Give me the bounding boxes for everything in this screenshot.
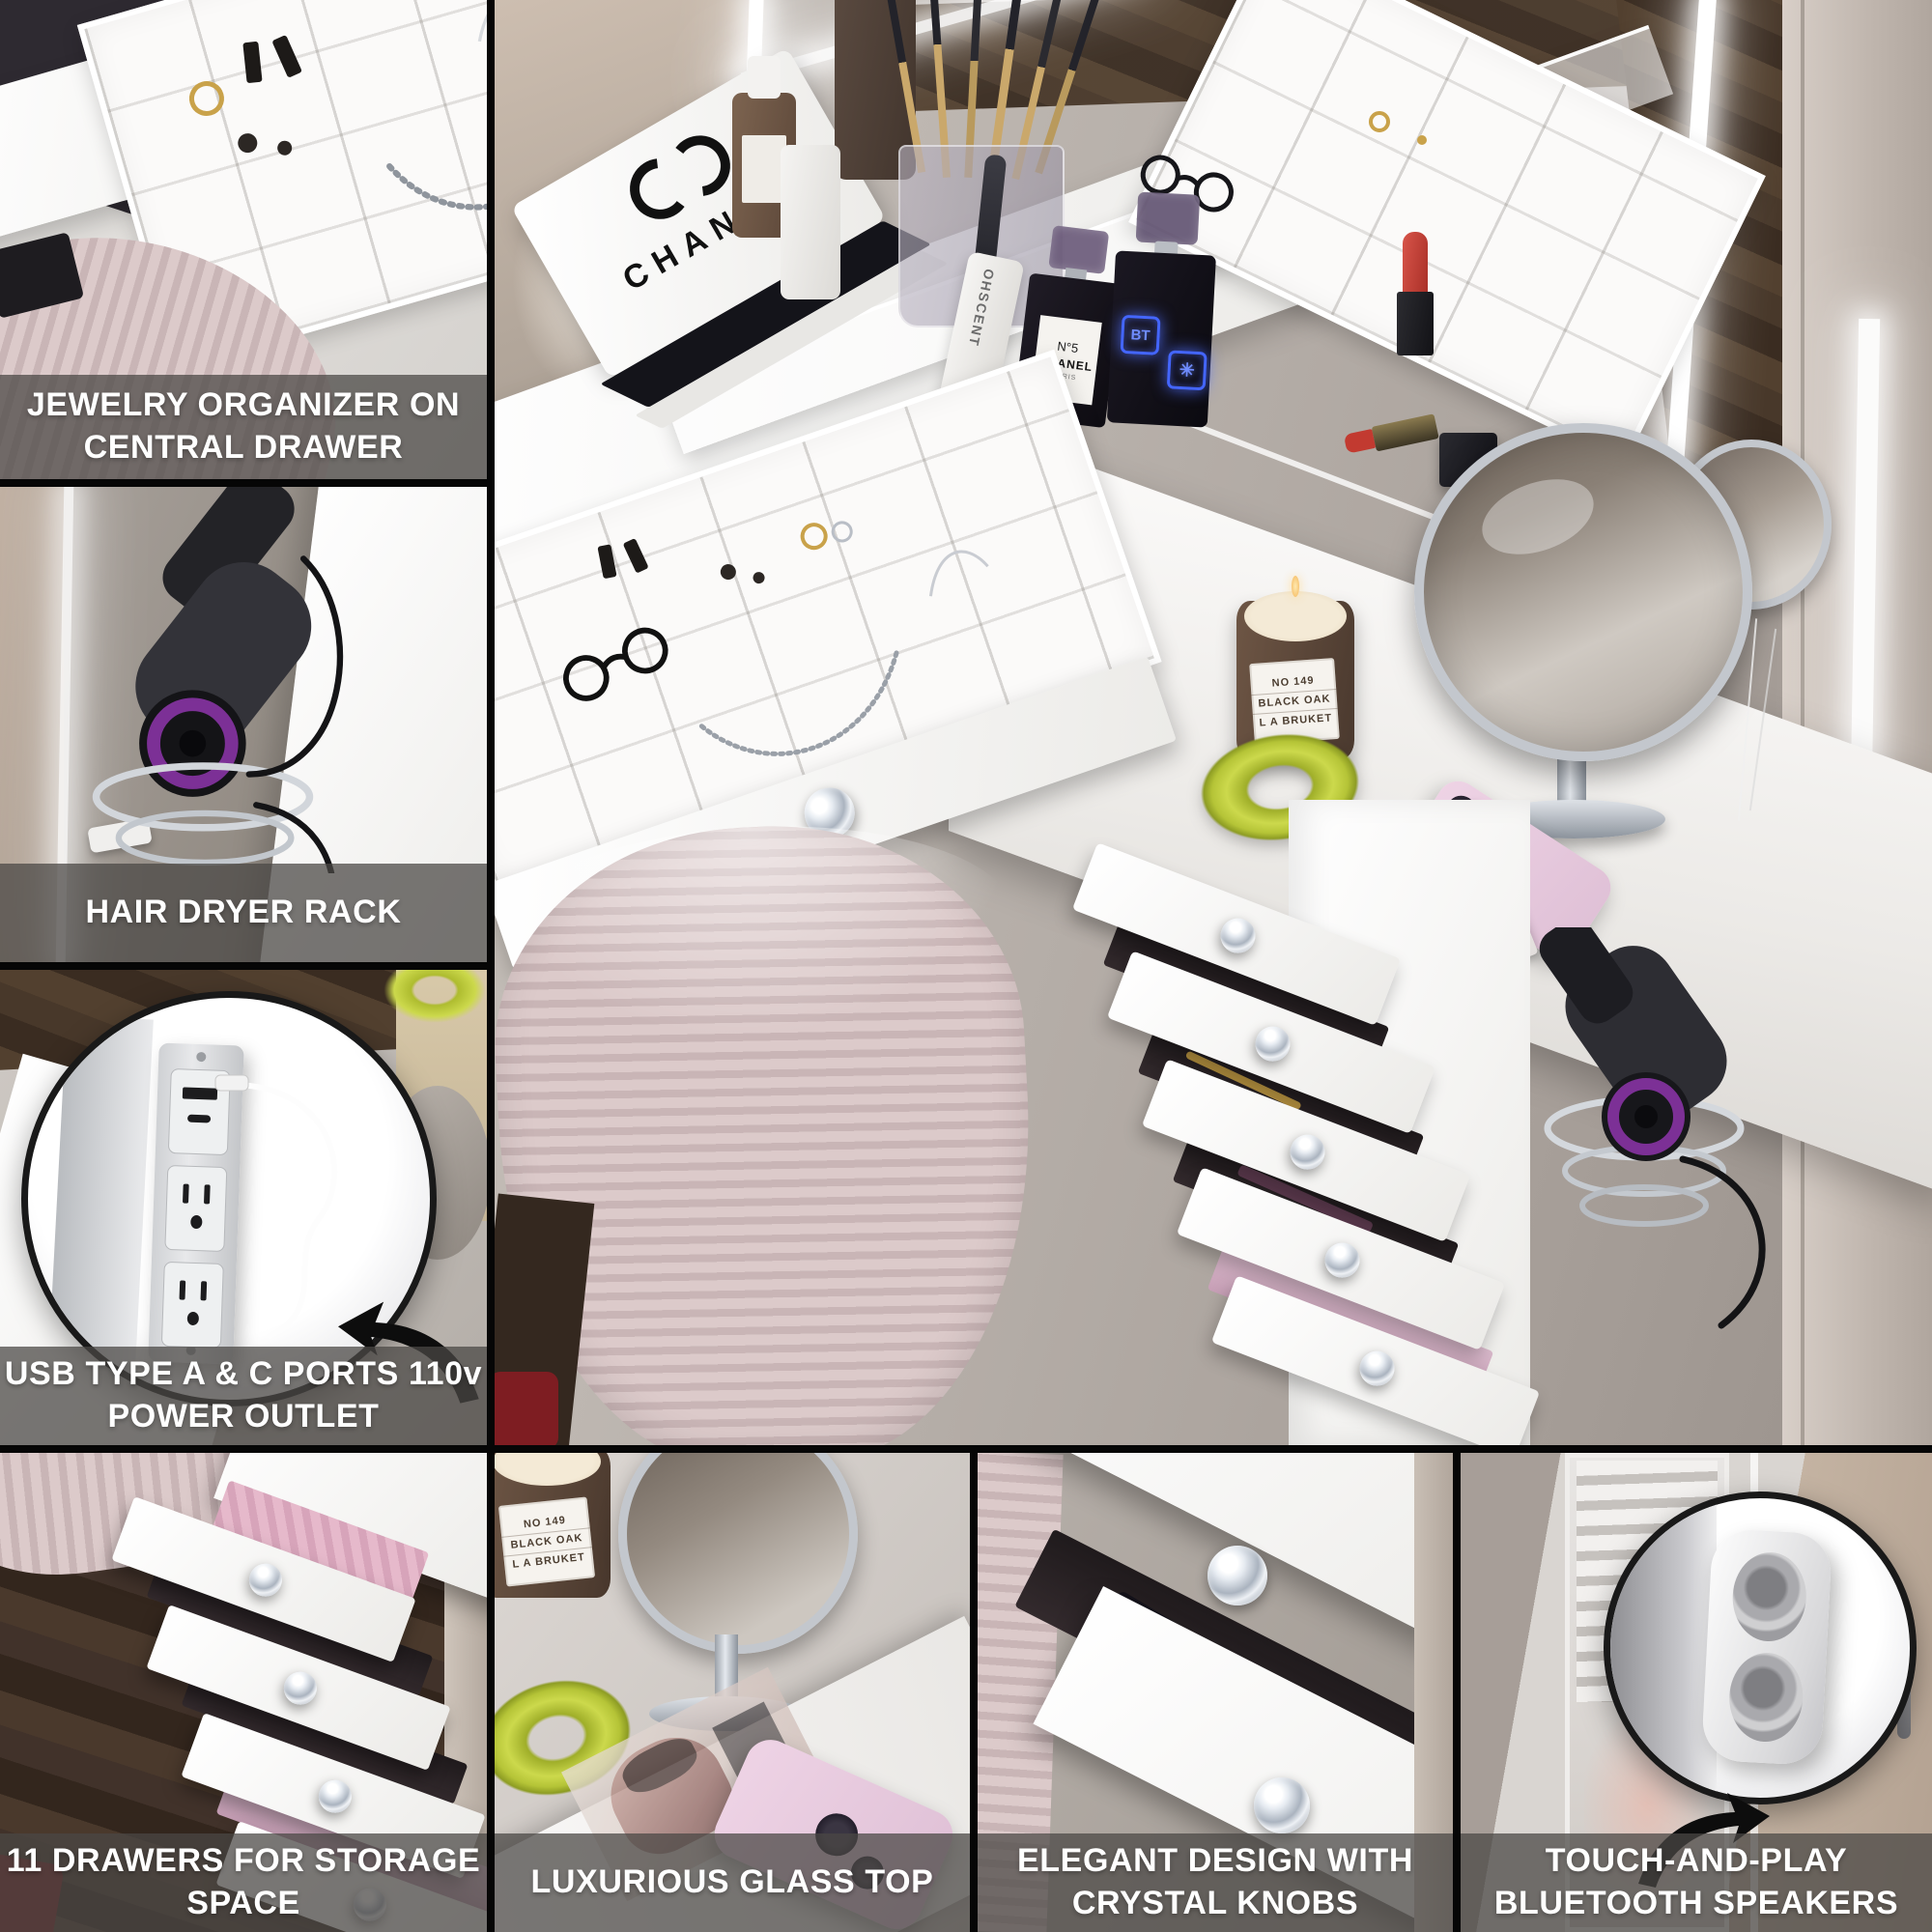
outlet-slot xyxy=(183,1184,189,1204)
outlet-ground xyxy=(187,1312,199,1325)
caption-crystal-knobs: ELEGANT DESIGN WITH CRYSTAL KNOBS xyxy=(978,1833,1453,1932)
drawer-knob[interactable] xyxy=(1215,913,1261,958)
caption-line: USB TYPE A & C PORTS 110v xyxy=(5,1353,482,1396)
mirror-sliver xyxy=(1610,1498,1717,1798)
outlet-ground xyxy=(190,1215,202,1229)
crystal-knob-lower[interactable] xyxy=(1254,1777,1310,1833)
stud-earring xyxy=(236,131,260,156)
perfume-bottle-touch: BT ✳ xyxy=(1107,190,1219,427)
candle-label-name: BLACK OAK xyxy=(1251,689,1337,710)
tassel-earring xyxy=(242,42,262,83)
drawer-knob[interactable] xyxy=(1285,1129,1330,1175)
speaker-magnifier-circle xyxy=(1604,1492,1917,1804)
main-photo-panel: CHANEL OHSCENT xyxy=(495,0,1932,1445)
glass-top-panel: NO 149 BLACK OAK L A BRUKET xyxy=(495,1453,970,1932)
speaker-driver[interactable] xyxy=(1730,1550,1808,1643)
caption-line: CENTRAL DRAWER xyxy=(84,427,404,469)
speaker-driver[interactable] xyxy=(1727,1651,1805,1744)
usb-power-panel: USB TYPE A & C PORTS 110v POWER OUTLET xyxy=(0,970,487,1445)
caption-line: ELEGANT DESIGN WITH xyxy=(1017,1840,1413,1883)
red-bag xyxy=(495,1372,558,1445)
candle-label: NO 149 BLACK OAK L A BRUKET xyxy=(498,1496,595,1586)
caption-line: 11 DRAWERS FOR STORAGE xyxy=(7,1840,481,1883)
gold-hoop-earring xyxy=(185,77,229,121)
bluetooth-touch-icon[interactable]: BT xyxy=(1121,315,1161,355)
wardrobe-seam xyxy=(1801,0,1804,1445)
main-photo-scene: CHANEL OHSCENT xyxy=(495,0,1932,1445)
hair-dryer-in-rack xyxy=(39,487,367,873)
light-touch-glyph: ✳ xyxy=(1179,358,1195,382)
jewelry-organizer-panel: JEWELRY ORGANIZER ON CENTRAL DRAWER xyxy=(0,0,487,479)
light-touch-icon[interactable]: ✳ xyxy=(1167,350,1207,390)
drawer-knob[interactable] xyxy=(1320,1237,1365,1283)
drawer-knob[interactable] xyxy=(1354,1346,1400,1391)
caption-jewelry-organizer: JEWELRY ORGANIZER ON CENTRAL DRAWER xyxy=(0,375,487,479)
vanity-mirror xyxy=(618,1453,858,1654)
caption-line: SPACE xyxy=(186,1883,300,1925)
drawers-panel: 11 DRAWERS FOR STORAGE SPACE xyxy=(0,1453,487,1932)
caption-glass-top: LUXURIOUS GLASS TOP xyxy=(495,1833,970,1932)
stud-earring xyxy=(275,139,294,157)
caption-line: JEWELRY ORGANIZER ON xyxy=(27,384,460,427)
vanity-mirror-large xyxy=(1414,423,1752,761)
crystal-knob-large[interactable] xyxy=(1207,1546,1267,1605)
caption-line: LUXURIOUS GLASS TOP xyxy=(531,1861,934,1904)
usb-c-port[interactable] xyxy=(187,1115,211,1123)
tube-label: OHSCENT xyxy=(966,268,998,349)
drawer-knob[interactable] xyxy=(244,1559,287,1602)
inner-shadow-panel xyxy=(47,1015,154,1386)
drawer-knob[interactable] xyxy=(1250,1021,1295,1066)
necklace-chain xyxy=(367,72,487,269)
tassel-earring xyxy=(271,35,302,78)
hair-dryer-panel: HAIR DRYER RACK xyxy=(0,487,487,962)
gold-earring-dot xyxy=(1369,111,1390,132)
caption-line: TOUCH-AND-PLAY xyxy=(1546,1840,1848,1883)
caption-hair-dryer: HAIR DRYER RACK xyxy=(0,864,487,962)
lipstick-standing xyxy=(1397,232,1435,367)
dropper-bottle-cap xyxy=(748,56,781,99)
drawer-knob[interactable] xyxy=(314,1776,356,1818)
outlet-slot xyxy=(204,1184,211,1204)
caption-line: BLUETOOTH SPEAKERS xyxy=(1494,1883,1898,1925)
caption-usb-power: USB TYPE A & C PORTS 110v POWER OUTLET xyxy=(0,1347,487,1445)
outlet-slot xyxy=(180,1280,186,1299)
perfume-no: N°5 xyxy=(1057,339,1079,356)
speaker-pod xyxy=(1701,1528,1833,1766)
crystal-knobs-panel: ELEGANT DESIGN WITH CRYSTAL KNOBS xyxy=(978,1453,1453,1932)
caption-line: POWER OUTLET xyxy=(107,1396,379,1438)
candle: NO 149 BLACK OAK L A BRUKET xyxy=(495,1453,611,1598)
bluetooth-touch-label: BT xyxy=(1130,327,1151,344)
hair-dryer-rack xyxy=(1499,927,1789,1333)
product-collage: CHANEL OHSCENT xyxy=(0,0,1932,1932)
lipstick-lying xyxy=(1343,413,1438,457)
drawer-knob[interactable] xyxy=(279,1667,322,1710)
caption-bluetooth-speakers: TOUCH-AND-PLAY BLUETOOTH SPEAKERS xyxy=(1461,1833,1932,1932)
dropper-bottle-white xyxy=(781,145,840,299)
candle-label-no: NO 149 xyxy=(1250,673,1336,691)
caption-line: CRYSTAL KNOBS xyxy=(1072,1883,1358,1925)
wire-earring xyxy=(456,0,487,54)
bluetooth-speakers-panel: TOUCH-AND-PLAY BLUETOOTH SPEAKERS xyxy=(1461,1453,1932,1932)
outlet-slot xyxy=(201,1281,208,1300)
caption-line: HAIR DRYER RACK xyxy=(86,892,402,934)
screw xyxy=(196,1052,206,1062)
gold-earring-dot xyxy=(1417,135,1427,145)
caption-drawers: 11 DRAWERS FOR STORAGE SPACE xyxy=(0,1833,487,1932)
